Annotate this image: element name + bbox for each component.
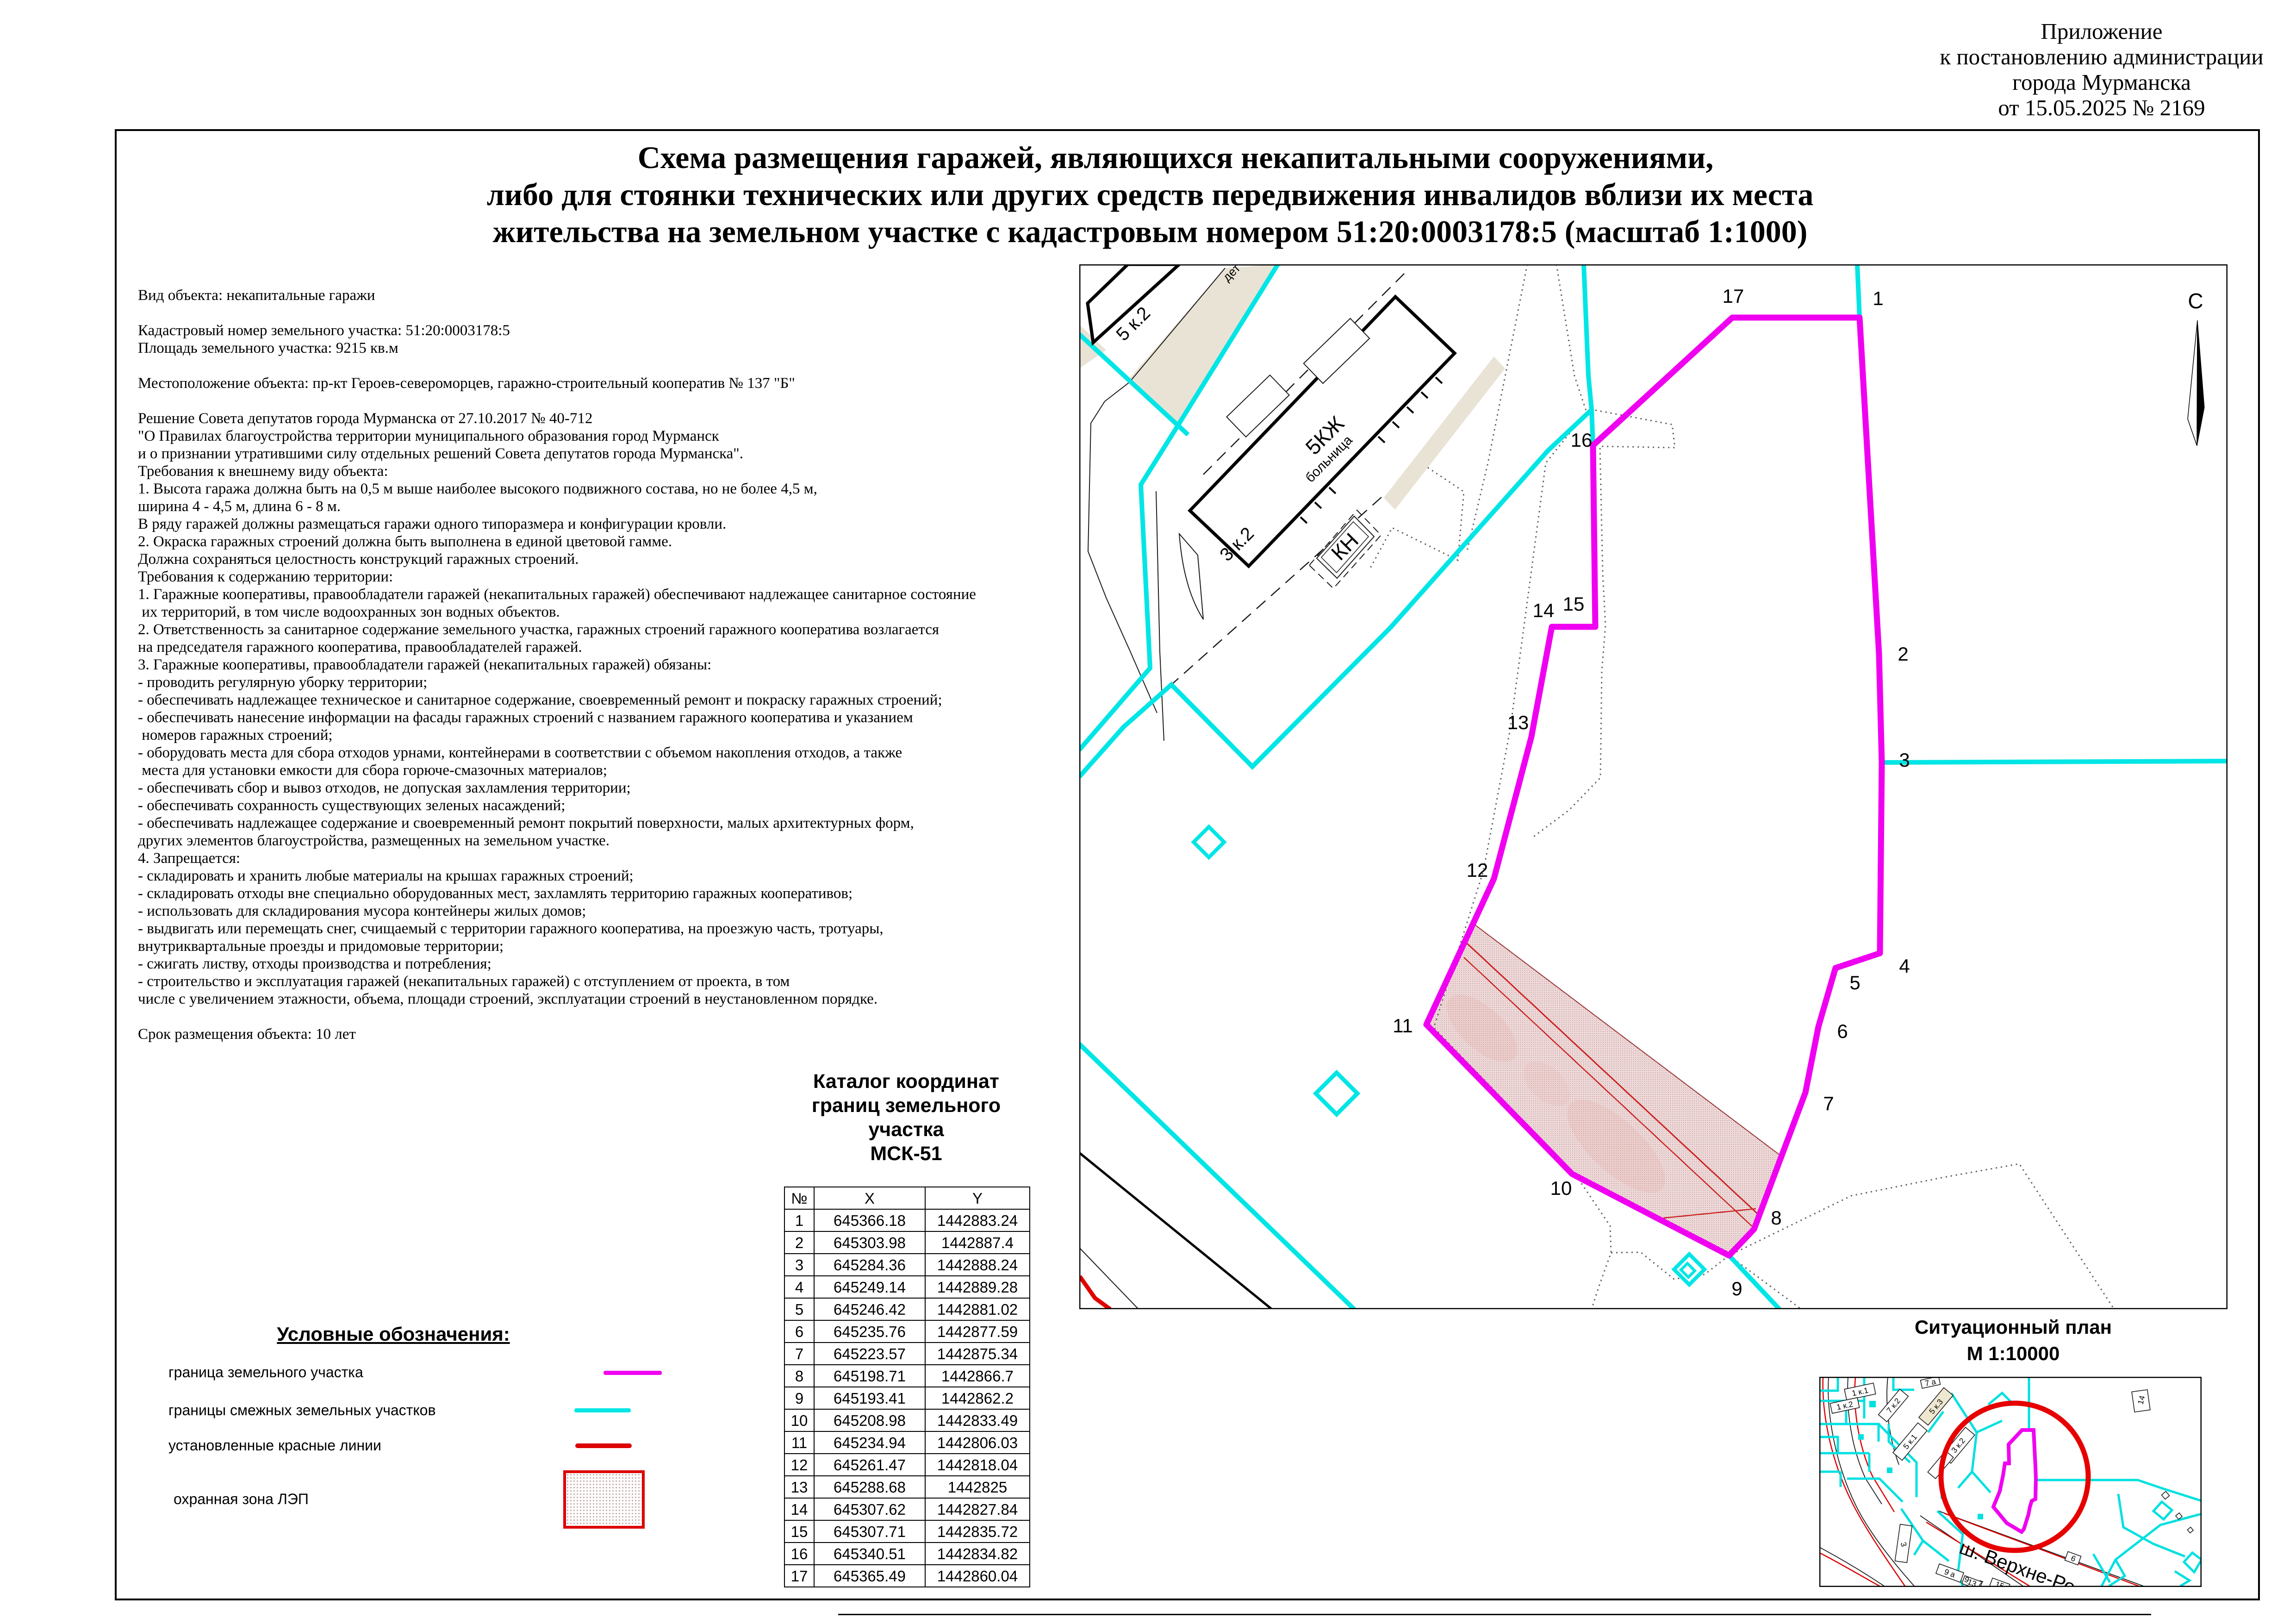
svg-text:1: 1 xyxy=(1873,287,1883,309)
svg-text:17: 17 xyxy=(1723,285,1744,307)
svg-text:2: 2 xyxy=(1898,643,1908,665)
svg-text:7: 7 xyxy=(1823,1093,1834,1114)
svg-text:10: 10 xyxy=(1550,1177,1572,1199)
svg-text:16: 16 xyxy=(1571,429,1593,451)
svg-text:13: 13 xyxy=(1507,712,1529,733)
svg-text:6: 6 xyxy=(1837,1020,1848,1042)
svg-text:11: 11 xyxy=(1393,1015,1413,1037)
svg-text:3: 3 xyxy=(1899,749,1910,771)
svg-text:5: 5 xyxy=(1849,972,1860,993)
svg-text:9: 9 xyxy=(1731,1278,1742,1299)
svg-text:С: С xyxy=(2188,289,2203,313)
svg-text:8: 8 xyxy=(1771,1207,1781,1229)
svg-text:14: 14 xyxy=(1533,600,1555,621)
svg-text:15: 15 xyxy=(1563,593,1585,615)
svg-text:4: 4 xyxy=(1899,955,1910,977)
svg-text:12: 12 xyxy=(1467,859,1488,881)
